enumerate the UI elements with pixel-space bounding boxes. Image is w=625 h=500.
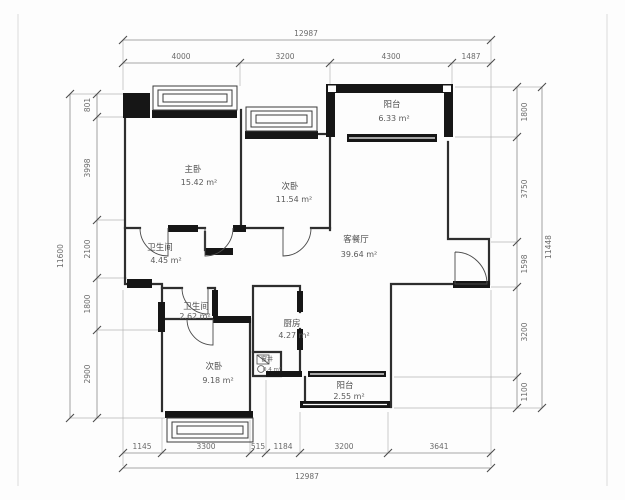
living-room-name: 客餐厅	[343, 234, 369, 245]
dim-bottom-seg: 3200	[334, 442, 353, 451]
dim-right-seg: 3750	[520, 179, 529, 198]
balcony-bottom-area: 2.55 m²	[333, 392, 364, 401]
dim-left-seg: 2100	[83, 239, 92, 258]
bed3-room-area: 9.18 m²	[202, 376, 233, 385]
floor-plan-drawing: 主卧 15.42 m² 次卧 11.54 m² 阳台 6.33 m² 客餐厅 3…	[0, 0, 625, 500]
dim-right-seg: 1800	[520, 102, 529, 121]
shaft-area: 0.4 m²	[263, 366, 281, 373]
dim-right-seg: 1598	[520, 254, 529, 273]
wall-seg	[168, 225, 198, 232]
wall-seg	[233, 225, 246, 232]
dim-top-seg: 3200	[275, 52, 294, 61]
room-labels: 主卧 15.42 m² 次卧 11.54 m² 阳台 6.33 m² 客餐厅 3…	[147, 99, 409, 401]
dim-top-seg: 1487	[461, 52, 480, 61]
balcony-left-wall	[326, 93, 335, 137]
dim-left-seg: 3998	[83, 158, 92, 177]
shaft-name: 窗井	[261, 355, 273, 363]
floor-plan-page: 主卧 15.42 m² 次卧 11.54 m² 阳台 6.33 m² 客餐厅 3…	[0, 0, 625, 500]
master-room-area: 15.42 m²	[181, 178, 217, 187]
dim-left-total: 11600	[56, 244, 65, 268]
doors	[140, 228, 487, 345]
wall-seg	[158, 302, 165, 332]
master-room-name: 主卧	[184, 164, 202, 175]
dim-bottom-seg: 515	[251, 442, 266, 451]
bed2-room-area: 11.54 m²	[276, 195, 312, 204]
master-bay-window	[153, 86, 237, 110]
solid-walls	[123, 84, 490, 418]
bed2-room-name: 次卧	[281, 181, 299, 192]
wall-seg	[212, 290, 218, 316]
dim-right-seg: 1100	[520, 382, 529, 401]
dim-left-seg: 801	[83, 98, 92, 113]
corner-wall-block	[123, 93, 150, 118]
bath2-room-name: 卫生间	[183, 301, 209, 312]
dim-right-total: 11448	[544, 235, 553, 259]
balcony-top-wall	[326, 84, 453, 93]
dim-left-seg: 2900	[83, 364, 92, 383]
dim-bottom-seg: 1184	[273, 442, 292, 451]
bed3-room-name: 次卧	[205, 361, 223, 372]
balcony-top-name: 阳台	[383, 99, 400, 110]
balcony-bottom-name: 阳台	[336, 380, 353, 391]
kitchen-room-area: 4.27 m²	[278, 331, 309, 340]
bed2-top-wall	[245, 131, 318, 139]
entry-threshold	[453, 281, 490, 288]
balcony-top-area: 6.33 m²	[378, 114, 409, 123]
bath1-room-area: 4.45 m²	[150, 256, 181, 265]
dim-bottom-seg: 1145	[132, 442, 151, 451]
dim-left-seg: 1800	[83, 294, 92, 313]
bed3-bay-window	[167, 418, 253, 442]
kitchen-room-name: 厨房	[283, 318, 300, 329]
wall-seams	[303, 138, 435, 405]
bath2-room-area: 2.62 m²	[179, 312, 210, 321]
balcony-right-wall	[444, 93, 453, 137]
bed2-bay-window	[246, 107, 317, 131]
bed3-bottom-wall	[165, 411, 253, 418]
bed3-door-arc	[187, 319, 213, 345]
living-room-area: 39.64 m²	[341, 250, 377, 259]
dim-bottom-seg: 3300	[196, 442, 215, 451]
bath1-room-name: 卫生间	[147, 242, 173, 253]
dim-top-seg: 4000	[171, 52, 190, 61]
kitchen-wall-seg	[297, 291, 303, 312]
walls	[125, 95, 489, 411]
master-top-wall	[152, 110, 237, 118]
dim-top-total: 12987	[294, 29, 318, 38]
dim-right-seg: 3200	[520, 322, 529, 341]
wall-seg	[127, 279, 152, 288]
bed2-door-arc	[283, 228, 311, 256]
dim-bottom-total: 12987	[295, 472, 319, 481]
dim-top-seg: 4300	[381, 52, 400, 61]
wall-seg	[205, 248, 233, 255]
wall-seg	[213, 316, 251, 323]
entry-door-arc	[455, 252, 487, 284]
dim-bottom-seg: 3641	[429, 442, 448, 451]
